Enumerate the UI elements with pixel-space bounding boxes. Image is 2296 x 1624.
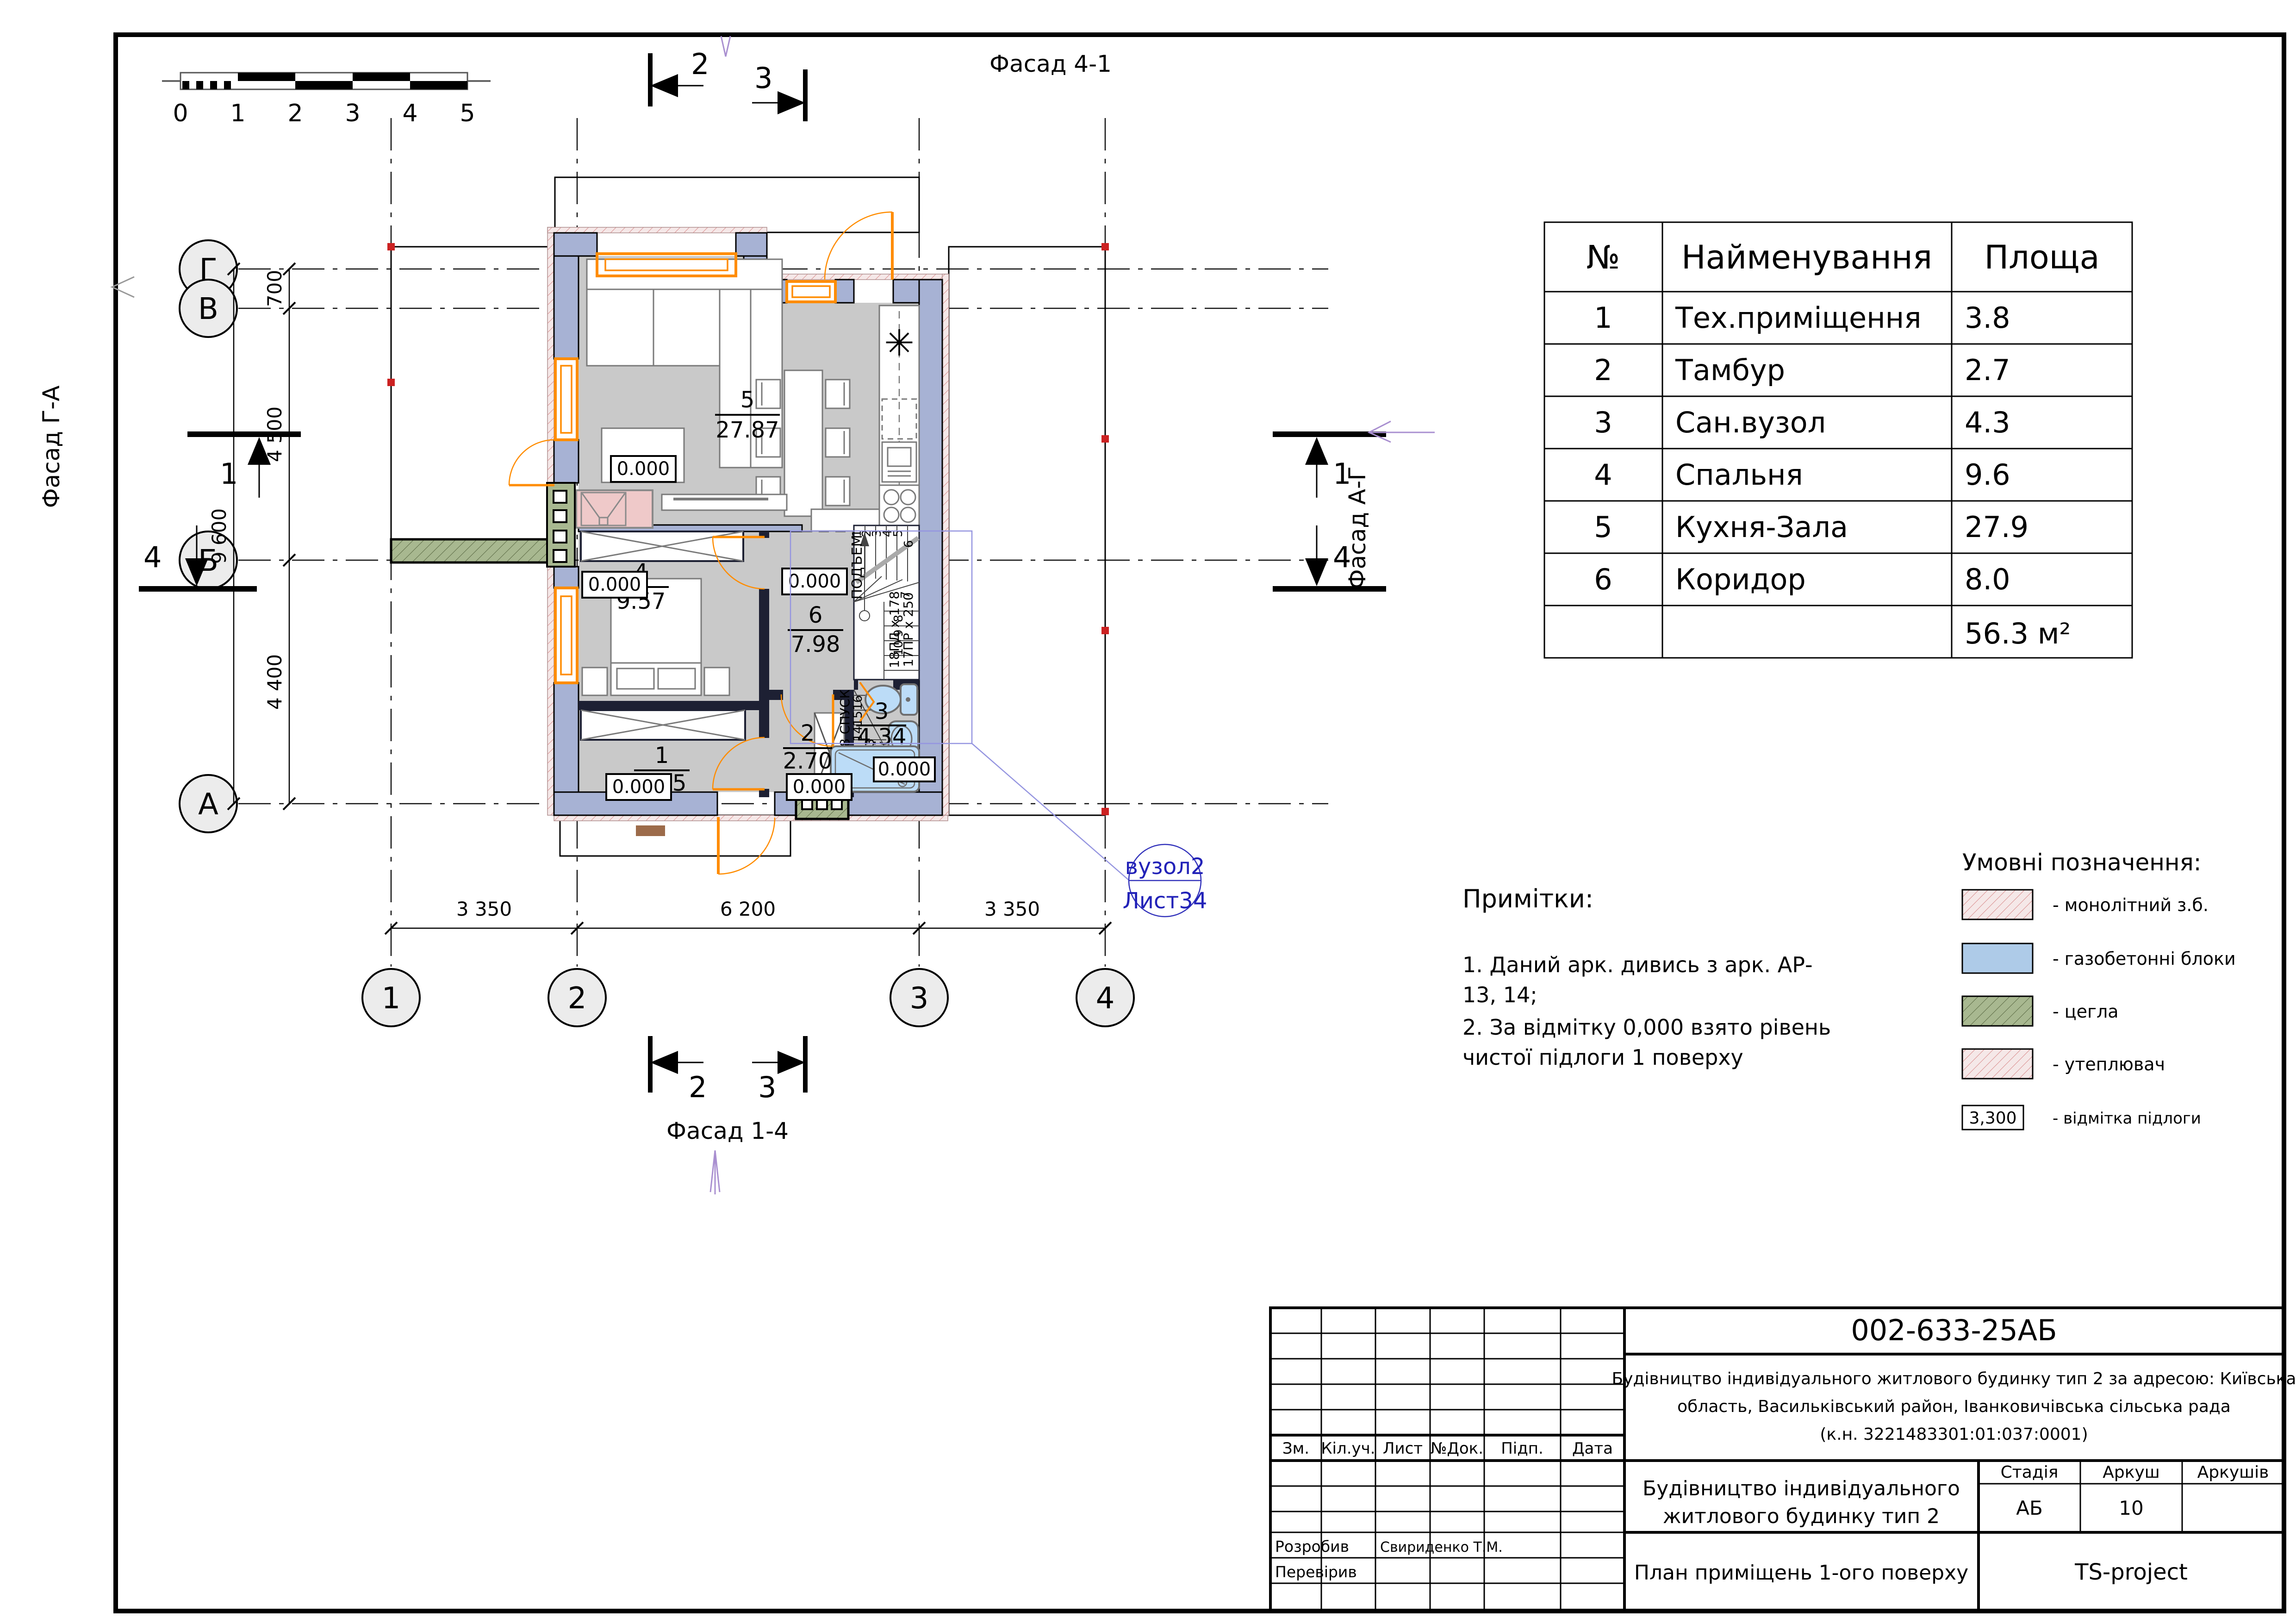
dim-700: 700	[263, 270, 286, 307]
svg-text:9.6: 9.6	[1965, 458, 2010, 492]
table-row: 1Тех.приміщення3.8	[1594, 301, 2010, 335]
table-total: 56.3 м²	[1965, 617, 2071, 650]
dim-3350-left: 3 350	[456, 898, 512, 920]
svg-text:чистої підлоги 1 поверху: чистої підлоги 1 поверху	[1462, 1045, 1743, 1070]
svg-text:№Док.: №Док.	[1431, 1439, 1483, 1458]
window-living-left	[555, 359, 577, 440]
dim-6200: 6 200	[720, 898, 776, 920]
svg-text:Кіл.уч.: Кіл.уч.	[1321, 1439, 1375, 1458]
porch-outline	[560, 815, 790, 856]
svg-text:Коридор: Коридор	[1675, 562, 1806, 596]
svg-text:8.0: 8.0	[1965, 562, 2010, 596]
nightstand	[582, 668, 607, 695]
svg-text:7: 7	[899, 591, 913, 599]
legend-title: Умовні позначення:	[1962, 849, 2202, 876]
table-header-num: №	[1587, 238, 1620, 276]
scale-label: 0	[173, 100, 188, 127]
svg-text:- відмітка підлоги: - відмітка підлоги	[2053, 1109, 2201, 1128]
svg-text:Підп.: Підп.	[1501, 1439, 1543, 1458]
detail-name: вузол2	[1125, 854, 1205, 880]
svg-text:0.000: 0.000	[588, 574, 641, 595]
svg-text:4: 4	[1594, 458, 1612, 492]
legend-swatch-aerated	[1962, 943, 2033, 973]
svg-text:8: 8	[892, 615, 906, 623]
table-row: 4Спальня9.6	[1594, 458, 2010, 492]
svg-text:2.70: 2.70	[783, 748, 833, 774]
room-schedule-table: № Найменування Площа 1Тех.приміщення3.8 …	[1544, 222, 2132, 658]
object-name: Будівництво індивідуального житлового бу…	[1643, 1477, 1960, 1528]
svg-text:4: 4	[143, 540, 162, 574]
svg-text:9: 9	[892, 630, 906, 637]
svg-text:2: 2	[689, 1070, 707, 1104]
svg-text:- утеплювач: - утеплювач	[2053, 1054, 2165, 1074]
stage-headers: Стадія Аркуш Аркушів	[2001, 1463, 2269, 1482]
table-header-area: Площа	[1984, 238, 2099, 276]
svg-text:3: 3	[758, 1070, 776, 1104]
svg-text:Аркушів: Аркушів	[2197, 1463, 2269, 1482]
table-row: 3Сан.вузол4.3	[1594, 406, 2010, 439]
svg-text:Зм.: Зм.	[1282, 1439, 1309, 1458]
svg-text:2: 2	[691, 47, 709, 81]
svg-text:3,300: 3,300	[1969, 1109, 2016, 1128]
svg-text:Будівництво індивідуального: Будівництво індивідуального	[1643, 1477, 1960, 1500]
svg-text:2.7: 2.7	[1965, 353, 2010, 387]
svg-text:4: 4	[1096, 981, 1115, 1016]
detail-sheet-ref: Лист34	[1123, 888, 1207, 914]
svg-text:Тамбур: Тамбур	[1675, 353, 1785, 387]
svg-text:6: 6	[1594, 562, 1612, 596]
table-row: 2Тамбур2.7	[1594, 353, 2010, 387]
legend-swatch-insulation	[1962, 1049, 2033, 1079]
svg-text:- газобетонні блоки: - газобетонні блоки	[2053, 949, 2236, 969]
svg-text:1: 1	[655, 743, 669, 768]
svg-text:0.000: 0.000	[878, 759, 931, 780]
svg-text:0.000: 0.000	[788, 571, 841, 592]
table-row: 5Кухня-Зала27.9	[1594, 510, 2028, 544]
notes-title: Примітки:	[1462, 884, 1593, 913]
scale-label: 1	[230, 100, 245, 127]
svg-text:3: 3	[754, 61, 772, 95]
checked-label: Перевірив	[1275, 1563, 1357, 1581]
scale-label: 5	[460, 100, 475, 127]
stage-value: АБ	[2016, 1497, 2043, 1519]
svg-text:Сан.вузол: Сан.вузол	[1675, 406, 1826, 439]
section-top: 2 3	[650, 47, 805, 121]
svg-text:0.000: 0.000	[793, 776, 846, 798]
svg-text:Спальня: Спальня	[1675, 458, 1803, 492]
scale-label: 2	[287, 100, 303, 127]
drawn-label: Розробив	[1275, 1537, 1349, 1555]
svg-text:1: 1	[220, 457, 238, 491]
legend-block: Умовні позначення: - монолітний з.б. - г…	[1962, 849, 2236, 1130]
svg-text:Лист: Лист	[1383, 1439, 1423, 1458]
svg-text:2: 2	[1594, 353, 1612, 387]
title-block: Зм. Кіл.уч. Лист №Док. Підп. Дата Розроб…	[1270, 1308, 2296, 1611]
svg-text:3: 3	[1594, 406, 1612, 439]
svg-text:Кухня-Зала: Кухня-Зала	[1675, 510, 1848, 544]
section-bottom: 2 3	[650, 1036, 805, 1104]
table-header-name: Найменування	[1681, 238, 1932, 276]
svg-text:0.000: 0.000	[617, 458, 670, 480]
drawn-name: Свириденко Т.М.	[1380, 1539, 1503, 1555]
dim-4400: 4 400	[263, 654, 286, 710]
facade-bottom-label: Фасад 1-4	[666, 1118, 789, 1144]
dining-table	[784, 370, 822, 516]
tambour-exit-door-swing	[718, 818, 775, 874]
window-bedroom	[555, 588, 577, 683]
facade-right-label: Фасад А-Г	[1344, 466, 1371, 589]
svg-text:область, Васильківський район,: область, Васильківський район, Іванкович…	[1677, 1397, 2231, 1416]
svg-text:Тех.приміщення: Тех.приміщення	[1675, 301, 1922, 335]
svg-text:Стадія: Стадія	[2001, 1463, 2059, 1482]
legend-swatch-brick	[1962, 996, 2033, 1026]
drawing-sheet: 0 1 2 3 4 5	[0, 0, 2296, 1624]
stair-down-label: 18 СПУСК	[837, 689, 852, 755]
svg-text:А: А	[198, 787, 218, 822]
svg-text:Будівництво індивідуального жи: Будівництво індивідуального житлового бу…	[1612, 1369, 2296, 1388]
window-entry	[787, 281, 835, 302]
pillow	[617, 668, 654, 689]
svg-text:2: 2	[568, 981, 587, 1016]
change-record-headers: Зм. Кіл.уч. Лист №Док. Підп. Дата	[1282, 1439, 1613, 1458]
svg-text:(к.н. 3221483301:01:037:0001): (к.н. 3221483301:01:037:0001)	[1820, 1425, 2088, 1444]
roof-overhang-outline	[555, 177, 919, 232]
svg-text:2: 2	[801, 720, 815, 746]
project-address: Будівництво індивідуального житлового бу…	[1612, 1369, 2296, 1444]
svg-text:4.34: 4.34	[857, 724, 907, 750]
svg-text:3: 3	[875, 699, 889, 725]
svg-text:5: 5	[740, 387, 755, 413]
sheet-title: План приміщень 1-ого поверху	[1634, 1561, 1968, 1585]
svg-text:5: 5	[1594, 510, 1612, 544]
stair-up-label: ПОДЪЕМ	[849, 535, 865, 599]
svg-text:1. Даний арк. дивись з арк. АР: 1. Даний арк. дивись з арк. АР-	[1462, 952, 1813, 977]
company-name: TS-project	[2074, 1559, 2188, 1585]
svg-text:1: 1	[1594, 301, 1612, 335]
table-row: 6Коридор8.0	[1594, 562, 2010, 596]
svg-text:6: 6	[809, 602, 823, 628]
tv-bench	[662, 494, 787, 510]
sink-icon: ✳	[884, 323, 914, 364]
svg-text:16: 16	[851, 695, 865, 710]
svg-text:Дата: Дата	[1572, 1439, 1613, 1458]
scale-bar: 0 1 2 3 4 5	[162, 73, 491, 127]
left-wing-outline	[391, 247, 555, 562]
svg-text:6: 6	[902, 540, 916, 548]
facade-left-label: Фасад Г-А	[38, 385, 65, 508]
sheet-number: 10	[2119, 1497, 2143, 1519]
svg-text:- монолітний з.б.: - монолітний з.б.	[2053, 895, 2209, 915]
nightstand	[704, 668, 729, 695]
dim-9600: 9 600	[208, 508, 230, 564]
dim-3350-right: 3 350	[984, 898, 1040, 920]
pillow	[658, 668, 695, 689]
svg-text:1: 1	[382, 981, 401, 1016]
svg-text:житлового будинку тип 2: житлового будинку тип 2	[1663, 1505, 1940, 1528]
svg-text:13, 14;: 13, 14;	[1462, 982, 1537, 1007]
svg-text:3.8: 3.8	[1965, 301, 2010, 335]
svg-text:3: 3	[910, 981, 929, 1016]
svg-text:27.9: 27.9	[1965, 510, 2028, 544]
svg-text:10: 10	[892, 640, 906, 656]
svg-text:2. За відмітку 0,000 взято рів: 2. За відмітку 0,000 взято рівень	[1462, 1015, 1831, 1040]
doc-code: 002-633-25АБ	[1851, 1313, 2057, 1347]
svg-text:27.87: 27.87	[716, 417, 779, 443]
legend-swatch-monolithic	[1962, 890, 2033, 919]
svg-text:0.000: 0.000	[612, 776, 666, 798]
facade-top-label: Фасад 4-1	[989, 50, 1112, 77]
svg-text:В: В	[198, 292, 218, 326]
scale-label: 4	[402, 100, 417, 127]
terrace-slab	[391, 539, 558, 562]
svg-text:4.3: 4.3	[1965, 406, 2010, 439]
svg-text:- цегла: - цегла	[2053, 1001, 2119, 1022]
doormat	[636, 825, 665, 836]
notes-block: Примітки: 1. Даний арк. дивись з арк. АР…	[1462, 884, 1831, 1070]
svg-text:Аркуш: Аркуш	[2103, 1463, 2159, 1482]
svg-text:7.98: 7.98	[791, 631, 840, 657]
scale-label: 3	[345, 100, 360, 127]
